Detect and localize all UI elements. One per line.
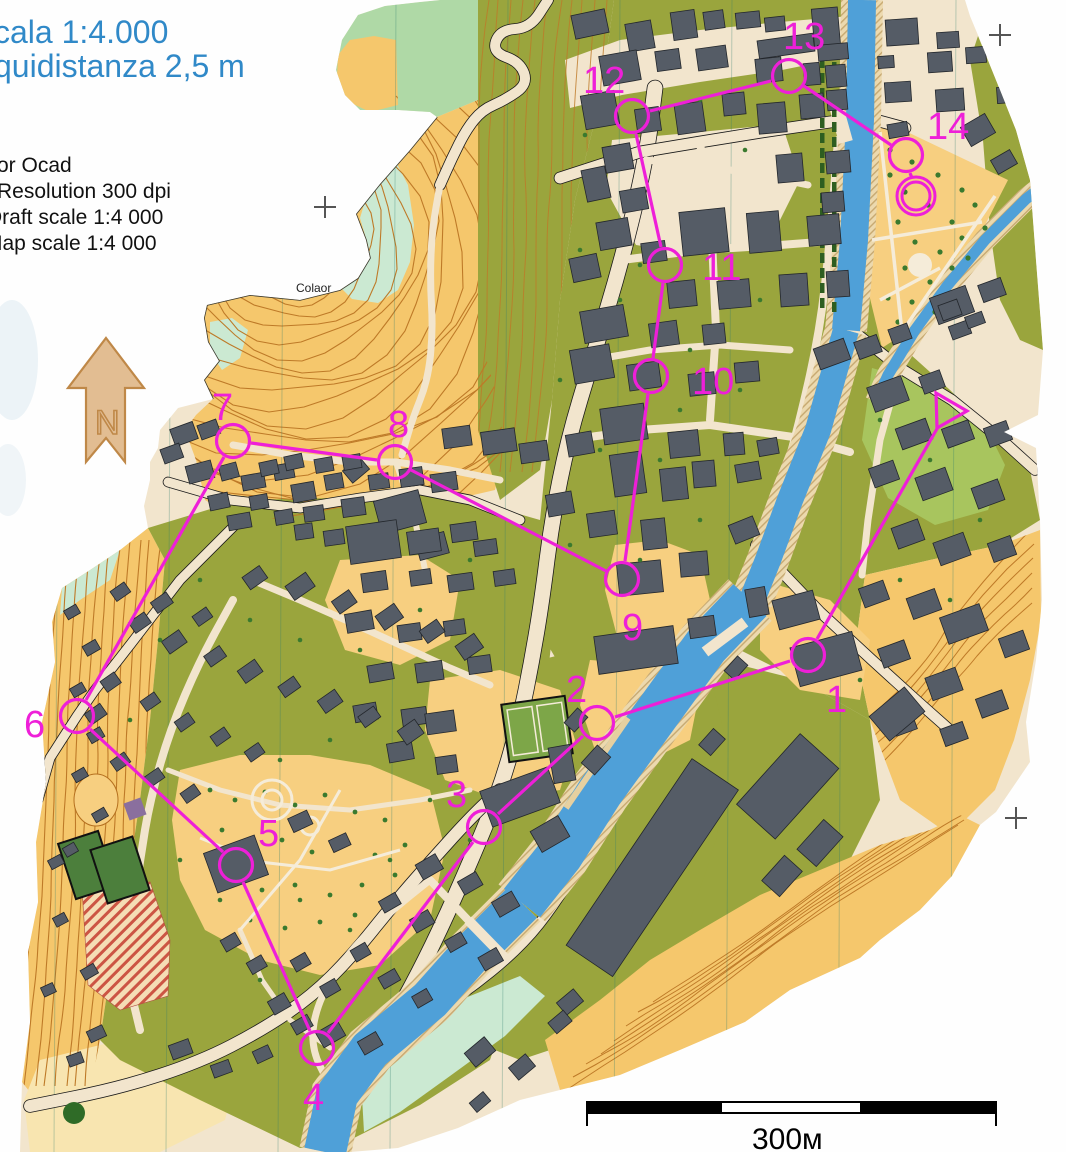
svg-text:13: 13	[783, 16, 825, 58]
svg-text:7: 7	[212, 387, 233, 429]
svg-text:quidistanza 2,5 m: quidistanza 2,5 m	[0, 48, 245, 84]
svg-text:12: 12	[583, 60, 625, 102]
svg-text:Colaor: Colaor	[296, 281, 331, 295]
svg-text:300м: 300м	[752, 1123, 823, 1152]
svg-text:8: 8	[388, 404, 409, 446]
svg-text:Draft scale 1:4 000: Draft scale 1:4 000	[0, 206, 163, 229]
svg-text:1: 1	[826, 679, 847, 721]
svg-text:N: N	[95, 404, 120, 442]
svg-text:4: 4	[303, 1077, 324, 1119]
svg-text:11: 11	[702, 247, 741, 289]
svg-text:6: 6	[24, 704, 45, 746]
svg-text:14: 14	[927, 106, 969, 148]
svg-text:cala 1:4.000: cala 1:4.000	[0, 14, 168, 50]
svg-text:9: 9	[622, 607, 643, 649]
svg-text:10: 10	[692, 361, 734, 403]
svg-text:or Ocad: or Ocad	[0, 154, 72, 177]
svg-text:Map scale 1:4 000: Map scale 1:4 000	[0, 232, 157, 255]
svg-text:5: 5	[258, 813, 279, 855]
svg-text:3: 3	[446, 774, 467, 816]
svg-text:2: 2	[566, 669, 587, 711]
svg-text:Resolution 300 dpi: Resolution 300 dpi	[0, 180, 171, 203]
